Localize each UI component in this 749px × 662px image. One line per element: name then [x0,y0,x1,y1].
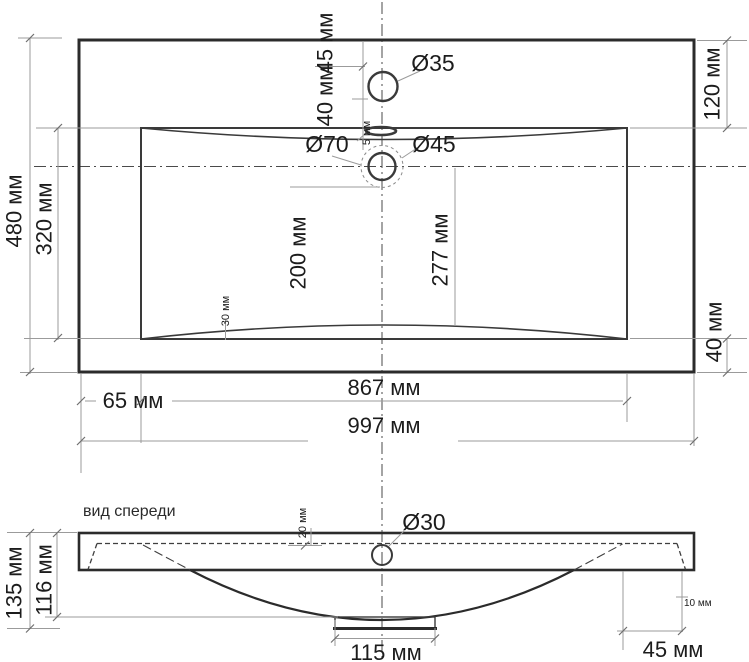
hidden-left-slope [143,545,190,570]
top-view [79,40,694,372]
dim-drain-to-back: 200 мм [286,216,311,289]
sink-outer-edge [79,40,694,372]
dim-front-body-height: 116 мм [32,544,57,615]
dim-front-lip: 10 мм [684,598,712,609]
front-view-label: вид спереди [83,503,176,520]
dim-inner-width: 867 мм [347,375,420,400]
basin-rim [141,128,627,339]
sink-technical-drawing: 480 мм 320 мм 45 мм 40 мм 5 мм Ø35 Ø70 Ø… [0,0,749,662]
dim-outer-height: 480 мм [2,174,27,247]
faucet-hole [369,72,398,101]
drawing-canvas: 480 мм 320 мм 45 мм 40 мм 5 мм Ø35 Ø70 Ø… [0,0,749,662]
dim-left-margin: 65 мм [103,388,164,413]
dim-overflow-gap: 5 мм [361,121,373,145]
dim-outer-width: 997 мм [347,413,420,438]
dim-rim-depth: 30 мм [220,296,232,326]
top-view-dimension-labels: 480 мм 320 мм 45 мм 40 мм 5 мм Ø35 Ø70 Ø… [2,13,727,438]
front-view-dimension-lines [7,528,688,650]
dim-right-top-margin: 120 мм [700,47,725,120]
hidden-right-slope [574,544,623,570]
dim-right-bottom-margin: 40 мм [702,302,727,363]
dim-faucet-from-top: 45 мм [313,13,338,74]
hidden-left-wall [88,544,97,570]
dim-drain-to-front: 277 мм [428,213,453,286]
dim-front-total-height: 135 мм [2,546,27,619]
dim-front-foot-width: 115 мм [350,640,421,662]
dim-drain-hole-diameter: Ø45 [412,131,455,157]
dim-front-top-inset: 20 мм [297,508,309,538]
dim-front-drain-diameter: Ø30 [402,509,445,535]
dim-inner-height: 320 мм [32,182,57,255]
dim-faucet-hole-diameter: Ø35 [411,50,454,76]
hidden-right-wall [677,544,686,570]
dim-faucet-to-rim: 40 мм [313,66,338,127]
dim-front-right-offset: 45 мм [643,637,704,662]
basin-front-slope-curve [141,325,627,339]
front-view: вид спереди [79,503,694,629]
dim-drain-recess-diameter: Ø70 [305,131,348,157]
